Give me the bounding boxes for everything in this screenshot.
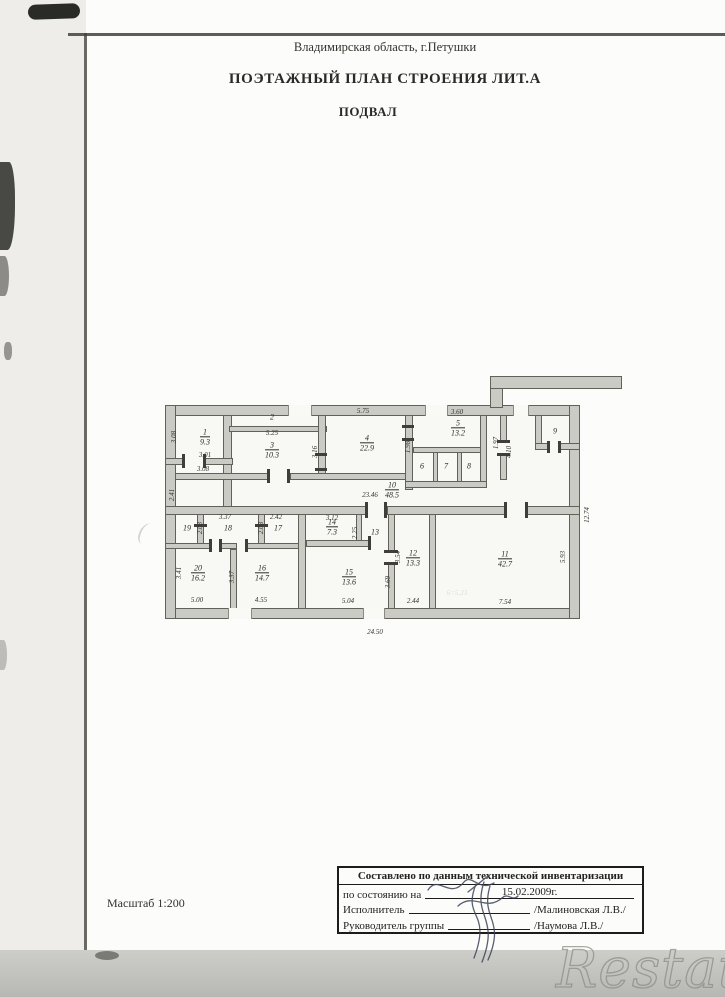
pencil-mark bbox=[136, 521, 157, 547]
decorative-element: 12 bbox=[406, 548, 420, 558]
wall bbox=[387, 506, 505, 515]
decorative-element: 22.9 bbox=[360, 444, 374, 453]
dimension-label: 2.44 bbox=[407, 597, 419, 605]
decorative-element: 10 bbox=[385, 480, 399, 490]
dimension-label: 3.08 bbox=[170, 431, 178, 443]
scan-smudge bbox=[28, 3, 80, 20]
decorative-element: 19 bbox=[183, 523, 191, 532]
stamp-row-label: по состоянию на bbox=[343, 889, 421, 901]
decorative-element: 17 bbox=[274, 523, 282, 532]
door-tick bbox=[365, 502, 368, 518]
wall bbox=[429, 514, 436, 609]
decorative-element: 15 bbox=[342, 567, 356, 577]
room-label: 13 bbox=[371, 527, 379, 536]
door-tick bbox=[245, 539, 248, 552]
decorative-element: 13 bbox=[371, 527, 379, 536]
decorative-element: 4 bbox=[360, 433, 374, 443]
wall bbox=[175, 473, 270, 480]
decorative-element: 48.5 bbox=[385, 491, 399, 500]
dimension-label: 6=5,23 bbox=[447, 589, 467, 597]
door-opening bbox=[363, 608, 385, 619]
dimension-label: 5.93 bbox=[559, 551, 567, 563]
decorative-element: 13.6 bbox=[342, 578, 356, 587]
dimension-label: 5.25 bbox=[266, 429, 278, 437]
scale-label: Масштаб 1:200 bbox=[107, 896, 185, 911]
room-label: 6 bbox=[420, 461, 424, 470]
dimension-label: 3.16 bbox=[311, 446, 319, 458]
dimension-label: 1.98 bbox=[404, 441, 412, 453]
scan-page-edge-vertical bbox=[84, 33, 87, 955]
dimension-label: 4.10 bbox=[505, 446, 513, 458]
decorative-element: 42.7 bbox=[498, 560, 512, 569]
page-subtitle: ПОДВАЛ bbox=[90, 104, 646, 120]
decorative-element bbox=[468, 876, 488, 892]
signature bbox=[418, 870, 550, 964]
door-tick bbox=[368, 536, 371, 550]
door-tick bbox=[547, 441, 550, 453]
scan-left-margin bbox=[0, 0, 86, 997]
room-label: 1048.5 bbox=[385, 480, 399, 499]
decorative-element: 10.3 bbox=[265, 451, 279, 460]
dimension-label: 3.54 bbox=[394, 551, 402, 563]
dimension-label: 5.00 bbox=[191, 596, 203, 604]
dimension-label: 4.55 bbox=[255, 596, 267, 604]
decorative-element bbox=[428, 876, 518, 962]
decorative-element: 8 bbox=[467, 461, 471, 470]
dimension-label: 3.37 bbox=[228, 571, 236, 583]
room-label: 18 bbox=[224, 523, 232, 532]
decorative-element: 7 bbox=[444, 461, 448, 470]
wall bbox=[306, 540, 371, 547]
decorative-element: 13.2 bbox=[451, 429, 465, 438]
floor-plan: 19.32310.3422.9513.267891048.5191817147.… bbox=[163, 373, 633, 645]
door-opening bbox=[228, 608, 252, 619]
dimension-label: 2.25 bbox=[351, 527, 359, 539]
dimension-label: 3.01 bbox=[199, 451, 211, 459]
decorative-element: 14.7 bbox=[255, 574, 269, 583]
door-tick bbox=[558, 441, 561, 453]
decorative-element: 5 bbox=[451, 418, 465, 428]
room-label: 2 bbox=[270, 412, 274, 421]
door-tick bbox=[209, 539, 212, 552]
room-label: 1213.3 bbox=[406, 548, 420, 567]
door-tick bbox=[315, 468, 327, 471]
decorative-element: 1 bbox=[200, 427, 210, 437]
room-label: 19 bbox=[183, 523, 191, 532]
door-tick bbox=[402, 425, 414, 428]
scan-page-edge-horizontal bbox=[68, 33, 725, 36]
wall bbox=[490, 376, 622, 389]
door-tick bbox=[504, 502, 507, 518]
door-tick bbox=[384, 502, 387, 518]
wall bbox=[500, 415, 507, 442]
dimension-label: 12.74 bbox=[583, 507, 591, 523]
dimension-label: 23.46 bbox=[362, 491, 378, 499]
door-tick bbox=[267, 469, 270, 483]
decorative-element bbox=[428, 880, 494, 890]
decorative-element: 6 bbox=[420, 461, 424, 470]
room-label: 1614.7 bbox=[255, 563, 269, 582]
dimension-label: 2.08 bbox=[257, 522, 265, 534]
dimension-label: 24.50 bbox=[367, 628, 383, 636]
decorative-element bbox=[472, 884, 480, 958]
region-header: Владимирская область, г.Петушки bbox=[90, 40, 680, 55]
decorative-element: 13.3 bbox=[406, 559, 420, 568]
wall bbox=[480, 415, 487, 487]
door-tick bbox=[182, 454, 185, 468]
dimension-label: 3.37 bbox=[219, 513, 231, 521]
decorative-element bbox=[488, 886, 495, 960]
wall bbox=[165, 543, 211, 549]
stamp-row-label: Исполнитель bbox=[343, 904, 405, 916]
room-label: 1513.6 bbox=[342, 567, 356, 586]
decorative-element: 16 bbox=[255, 563, 269, 573]
decorative-element: 11 bbox=[498, 549, 512, 559]
dimension-label: 3.69 bbox=[384, 576, 392, 588]
scanned-document-page: Владимирская область, г.Петушки ПОЭТАЖНЫ… bbox=[0, 0, 725, 997]
watermark: Restate bbox=[556, 936, 725, 997]
door-opening bbox=[513, 405, 529, 416]
wall bbox=[413, 447, 487, 453]
scan-smudge bbox=[95, 951, 119, 960]
door-tick bbox=[287, 469, 290, 483]
room-label: 9 bbox=[553, 426, 557, 435]
dimension-label: 3.41 bbox=[175, 567, 183, 579]
dimension-label: 3.60 bbox=[451, 408, 463, 416]
decorative-element: 9 bbox=[553, 426, 557, 435]
dimension-label: 7.54 bbox=[499, 598, 511, 606]
door-opening bbox=[425, 405, 448, 416]
wall bbox=[247, 543, 305, 549]
dimension-label: 2.42 bbox=[270, 513, 282, 521]
dimension-label: 3.12 bbox=[326, 514, 338, 522]
room-label: 422.9 bbox=[360, 433, 374, 452]
decorative-element: 3 bbox=[265, 440, 279, 450]
decorative-element bbox=[481, 882, 488, 962]
dimension-label: 2.03 bbox=[196, 522, 204, 534]
wall bbox=[535, 415, 542, 446]
room-label: 310.3 bbox=[265, 440, 279, 459]
dimension-label: 5.04 bbox=[342, 597, 354, 605]
decorative-element: 2 bbox=[270, 412, 274, 421]
room-label: 513.2 bbox=[451, 418, 465, 437]
room-label: 19.3 bbox=[200, 427, 210, 446]
room-label: 2016.2 bbox=[191, 563, 205, 582]
wall bbox=[405, 481, 487, 488]
scan-smudge bbox=[4, 342, 12, 360]
scan-smudge bbox=[0, 640, 7, 670]
decorative-element: 20 bbox=[191, 563, 205, 573]
room-label: 7 bbox=[444, 461, 448, 470]
wall bbox=[205, 458, 233, 465]
door-tick bbox=[525, 502, 528, 518]
wall bbox=[298, 514, 306, 609]
wall bbox=[500, 455, 507, 480]
page-title: ПОЭТАЖНЫЙ ПЛАН СТРОЕНИЯ ЛИТ.А bbox=[90, 71, 680, 88]
decorative-element: 7.3 bbox=[326, 528, 338, 537]
door-tick bbox=[219, 539, 222, 552]
room-label: 8 bbox=[467, 461, 471, 470]
scan-smudge bbox=[0, 162, 15, 250]
decorative-element: 9.3 bbox=[200, 438, 210, 447]
scan-smudge bbox=[0, 256, 9, 296]
wall bbox=[527, 506, 580, 515]
decorative-element: 18 bbox=[224, 523, 232, 532]
wall bbox=[388, 514, 395, 553]
dimension-label: 1.97 bbox=[492, 437, 500, 449]
room-label: 1142.7 bbox=[498, 549, 512, 568]
dimension-label: 5.75 bbox=[357, 407, 369, 415]
door-opening bbox=[288, 405, 312, 416]
dimension-label: 2.41 bbox=[168, 489, 176, 501]
dimension-label: 3.08 bbox=[197, 465, 209, 473]
decorative-element: 16.2 bbox=[191, 574, 205, 583]
room-label: 17 bbox=[274, 523, 282, 532]
wall bbox=[290, 473, 406, 480]
wall bbox=[560, 443, 580, 450]
